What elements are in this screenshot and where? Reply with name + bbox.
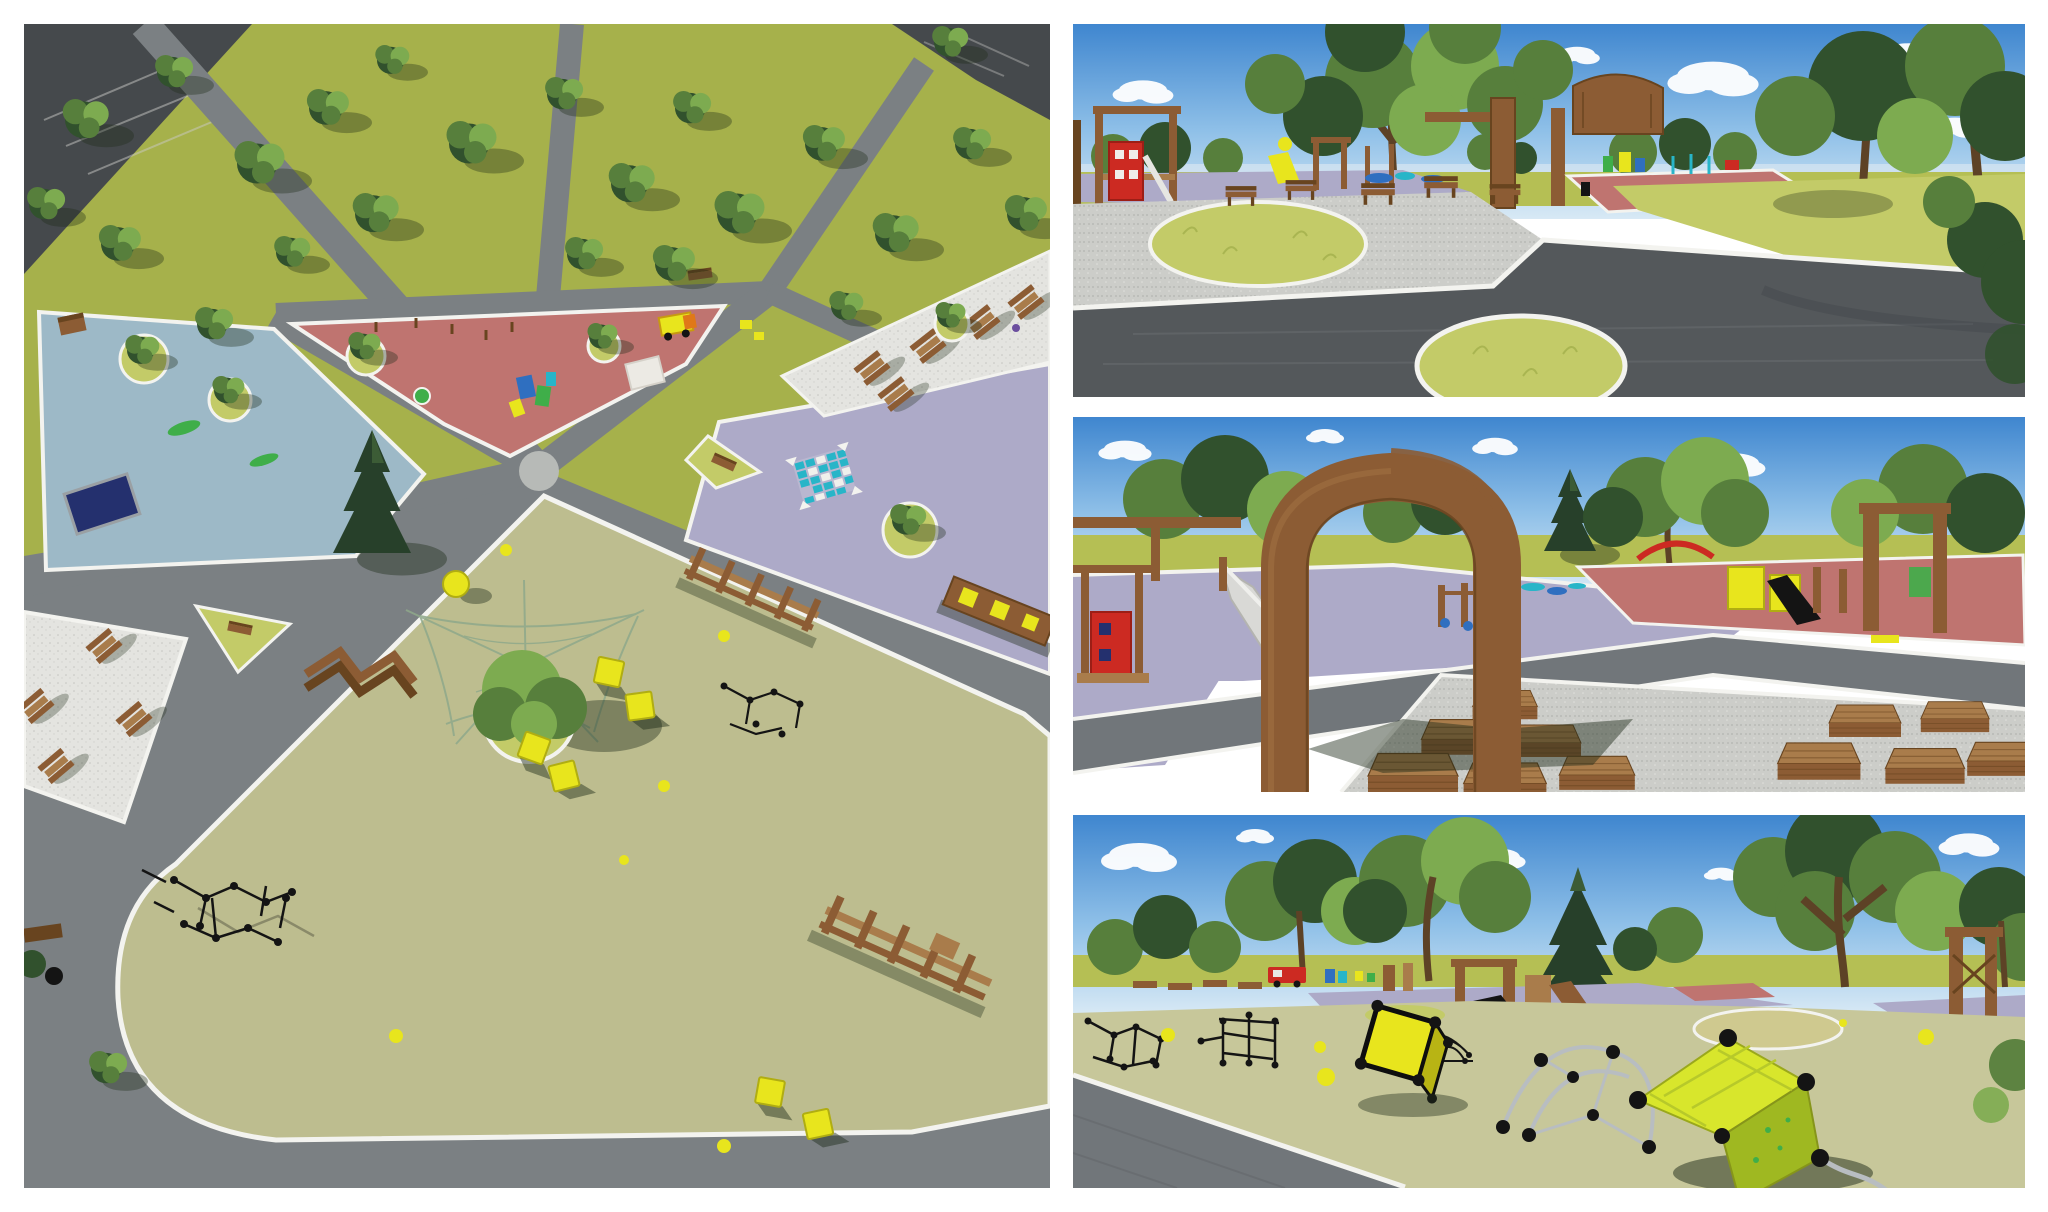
panel-aerial-masterplan: [24, 24, 1050, 1188]
panel-plaza-perspective: [1073, 24, 2025, 397]
tree-shadow: [1773, 190, 1893, 218]
collage: { "page": {"background": "#ffffff", "kin…: [0, 0, 2048, 1212]
panel-wooden-gate-perspective: [1073, 417, 2025, 792]
grass-mound: [1150, 202, 1366, 286]
central-plaza: [519, 451, 559, 491]
panel-rope-climbers-perspective: [1073, 815, 2025, 1188]
grass-island-foreground: [1417, 316, 1625, 397]
